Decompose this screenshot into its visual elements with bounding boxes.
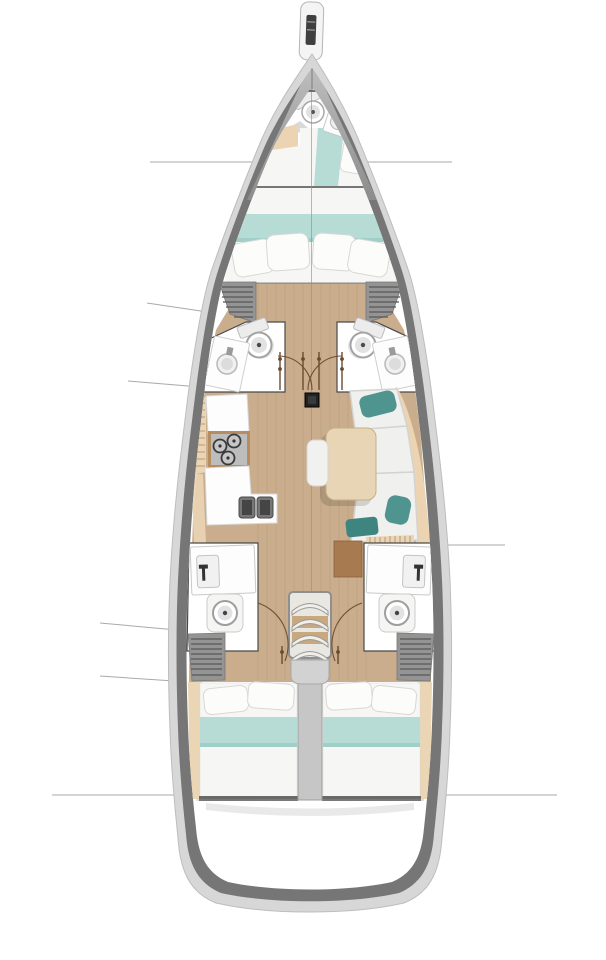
vanity bbox=[366, 545, 432, 595]
vanity bbox=[190, 545, 256, 595]
aft-pillow bbox=[325, 681, 373, 710]
engine-compartment bbox=[298, 682, 322, 800]
galley-counter-upper bbox=[206, 394, 249, 433]
toilet-icon bbox=[379, 594, 415, 632]
aft-pillow bbox=[247, 681, 295, 710]
aft-cabin-starboard bbox=[322, 681, 432, 801]
saloon-bench bbox=[307, 440, 328, 486]
companionway-stairs bbox=[289, 592, 331, 684]
yacht-floorplan bbox=[0, 0, 606, 960]
saloon-table bbox=[326, 428, 376, 500]
wardrobe-aft-starboard bbox=[397, 633, 434, 681]
stair-landing bbox=[291, 660, 329, 684]
owner-blanket bbox=[226, 214, 396, 242]
wardrobe-aft-port bbox=[188, 633, 225, 681]
storage-cabinet bbox=[334, 541, 362, 577]
aft-pillow bbox=[203, 685, 249, 715]
stove-icon bbox=[208, 431, 250, 468]
aft-pillow bbox=[371, 685, 417, 715]
mast-post bbox=[305, 393, 319, 407]
aft-blanket bbox=[200, 717, 297, 747]
aft-blanket bbox=[323, 717, 420, 747]
accent-throw bbox=[345, 516, 379, 537]
bowsprit bbox=[299, 2, 324, 61]
aft-cabin-port bbox=[188, 681, 298, 801]
floorplan-svg bbox=[0, 0, 606, 960]
toilet-icon bbox=[207, 594, 243, 632]
